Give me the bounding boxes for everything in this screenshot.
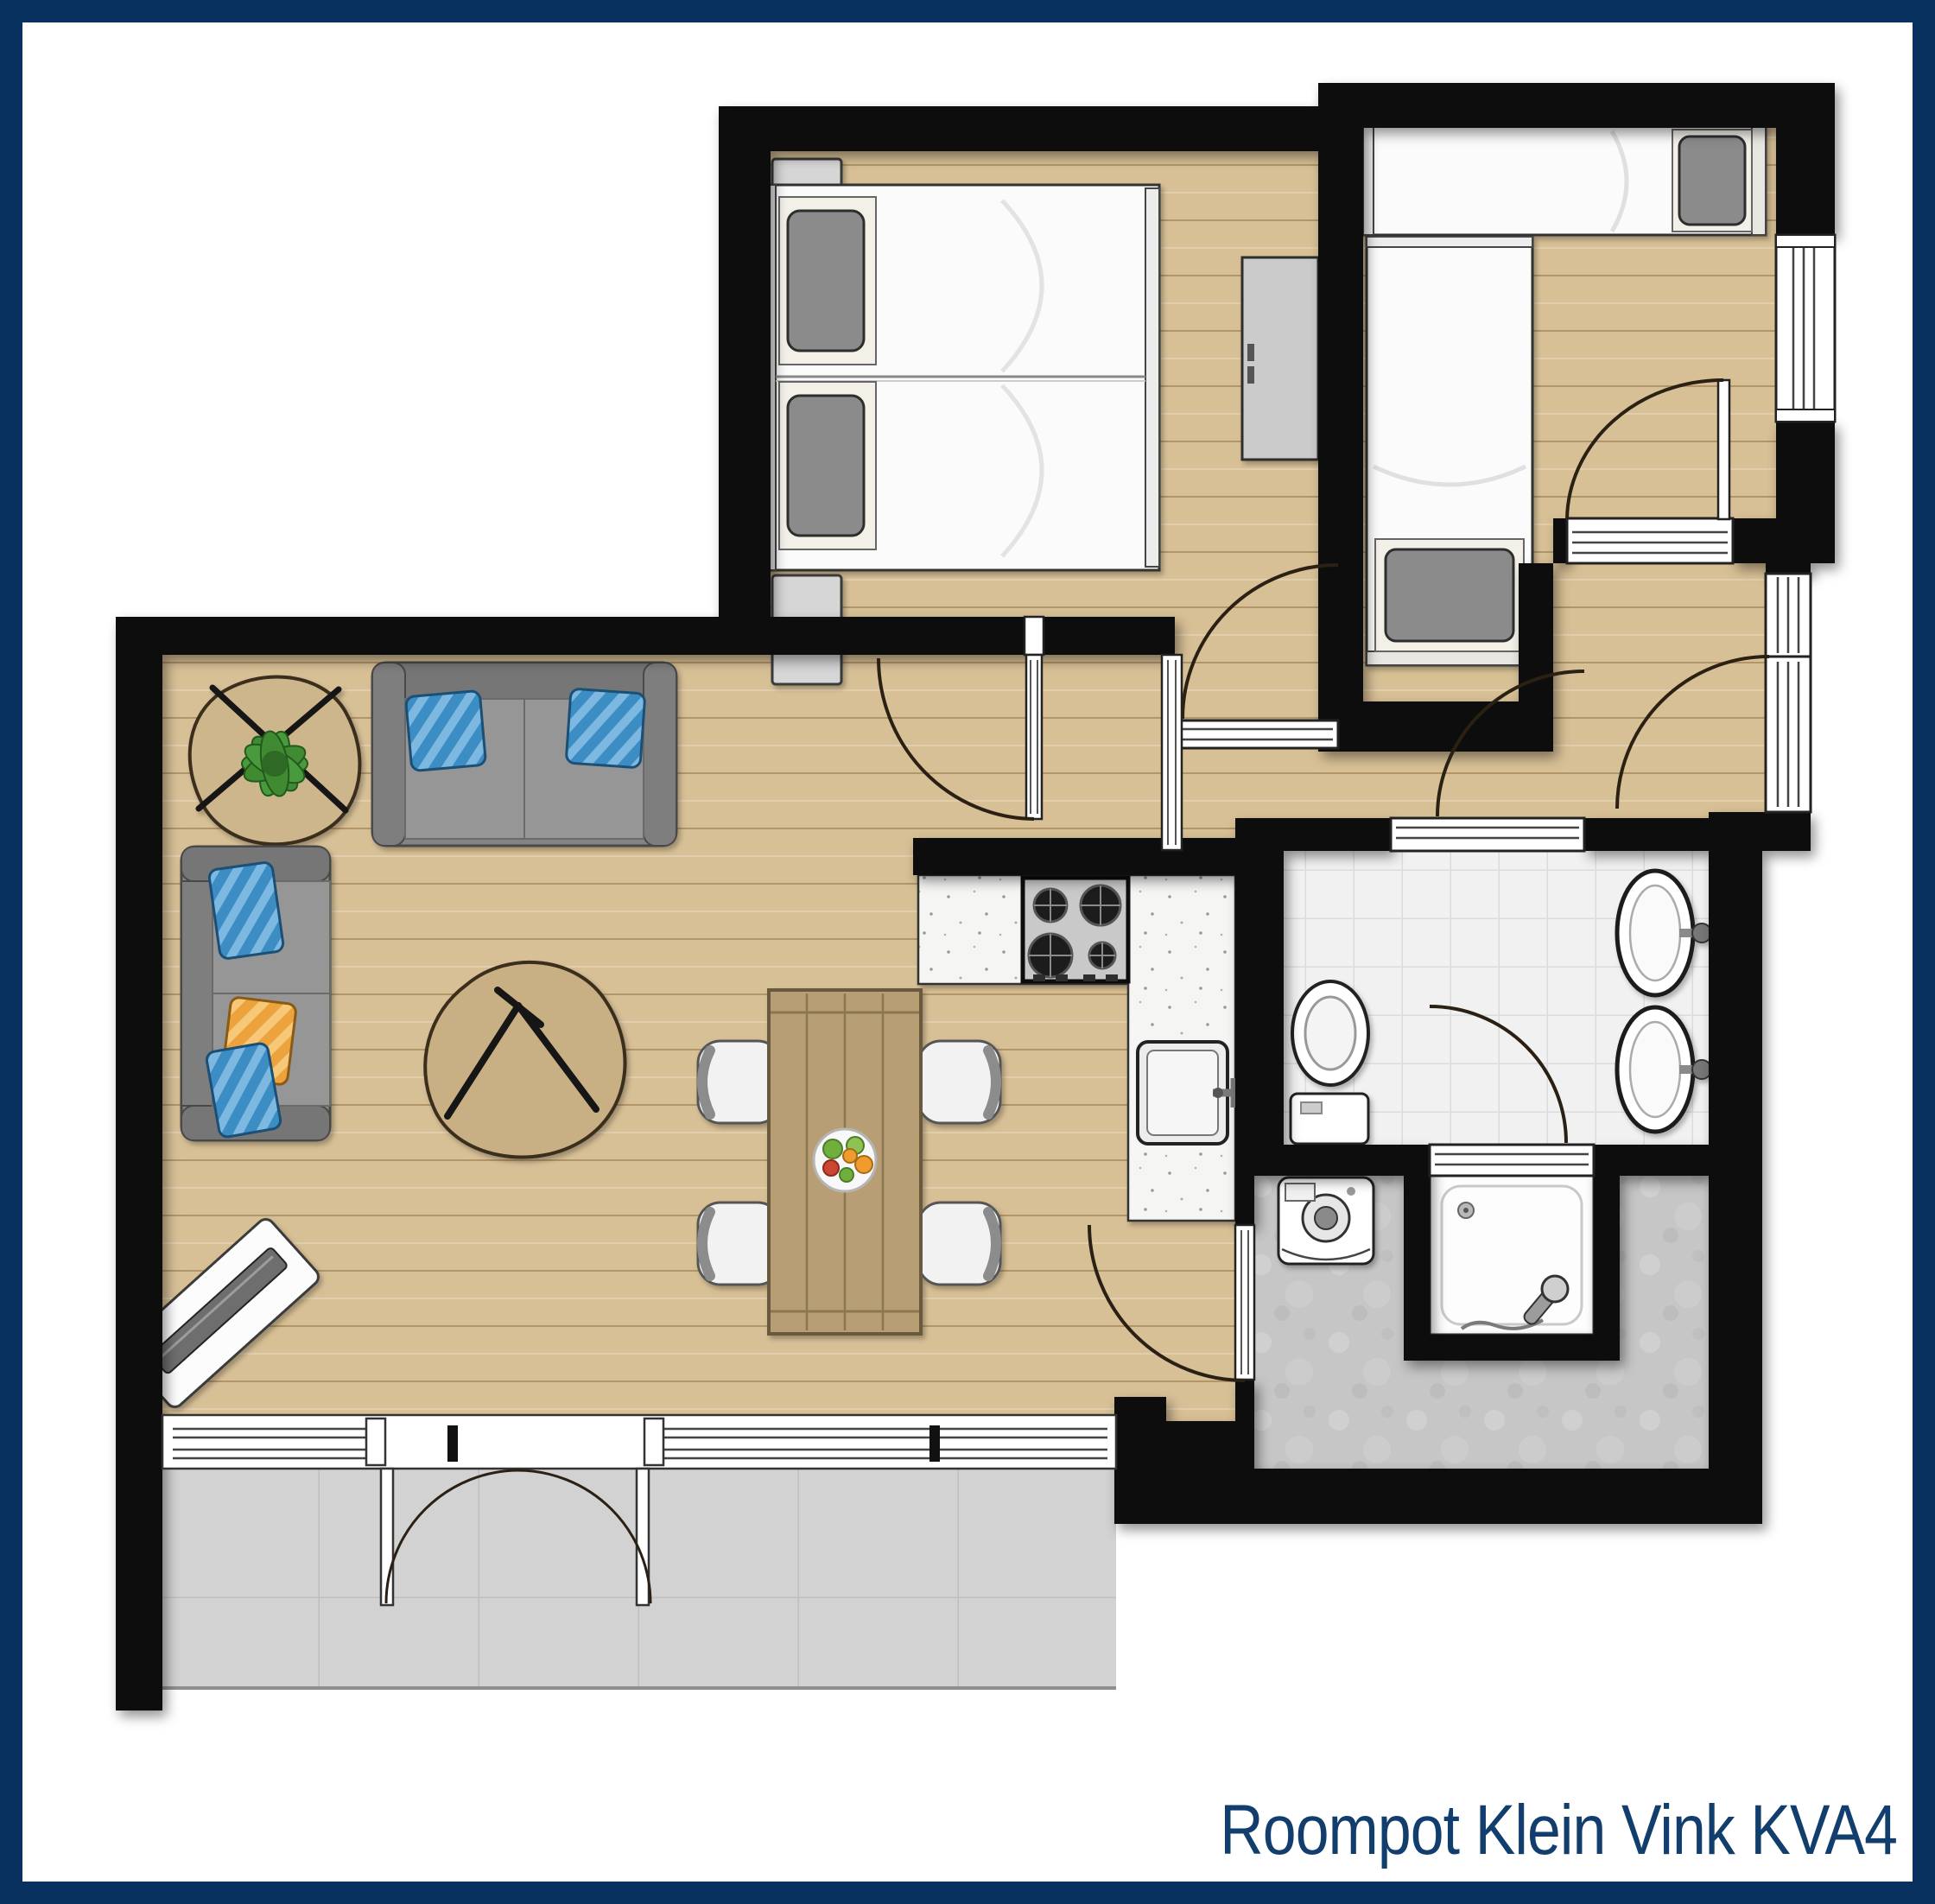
entrance-door: [1766, 657, 1811, 812]
door-jamb: [1235, 1225, 1254, 1380]
pillow: [1679, 136, 1745, 225]
kitchen-sink: [1138, 1042, 1242, 1144]
wall: [719, 106, 771, 655]
wall: [1235, 838, 1284, 1176]
washing-machine: [1278, 1177, 1374, 1264]
wall: [1709, 851, 1762, 1524]
bedroom1-wardrobe: [1242, 257, 1318, 460]
wall: [1235, 818, 1391, 851]
bedroom2-single-bed-vertical: [1367, 237, 1532, 665]
wall: [116, 617, 771, 655]
wall: [1553, 518, 1567, 563]
blue-pillow: [566, 689, 645, 768]
wall: [116, 617, 162, 1710]
three-seat-sofa: [372, 663, 676, 846]
pillow: [788, 211, 864, 351]
wall: [1766, 563, 1811, 574]
bedroom2-single-bed-horizontal: [1363, 126, 1766, 235]
toilet: [1291, 981, 1368, 1144]
dining-table: [769, 990, 921, 1334]
shower-cabin: [1430, 1176, 1594, 1335]
fruit-bowl-icon: [814, 1129, 876, 1191]
door-jamb: [1025, 617, 1044, 819]
shower-wall: [1594, 1145, 1620, 1361]
mullion: [929, 1425, 940, 1462]
wall: [1338, 720, 1364, 748]
plant-side-table: [190, 676, 360, 844]
door-threshold: [1172, 720, 1338, 748]
shower-wall: [1404, 1335, 1620, 1361]
window: [1776, 235, 1835, 422]
dining-chair: [918, 1203, 1000, 1285]
floorplan-svg: [0, 0, 1935, 1904]
wall: [1733, 518, 1776, 563]
mullion: [447, 1425, 458, 1462]
door-threshold: [1430, 1145, 1594, 1176]
blue-pillow: [206, 1043, 282, 1139]
shower-wall: [1404, 1145, 1430, 1361]
french-door-leaf: [637, 1469, 649, 1605]
pillow: [1386, 549, 1513, 641]
floor-plan-page: Roompot Klein Vink KVA4: [0, 0, 1935, 1904]
wall: [771, 617, 1175, 655]
wall: [1254, 1469, 1762, 1524]
door-leaf: [1026, 655, 1042, 819]
wall-jamb-strip: [1162, 655, 1182, 850]
wall: [1318, 83, 1835, 128]
wall: [719, 106, 1363, 151]
wall: [1114, 1397, 1166, 1524]
door-leaf: [1718, 380, 1729, 519]
dining-chair: [918, 1041, 1000, 1123]
wall: [1318, 128, 1363, 701]
wall: [913, 838, 1235, 875]
blue-pillow: [405, 690, 485, 771]
door-threshold: [1391, 818, 1584, 851]
two-seat-sofa: [181, 847, 330, 1140]
wall: [1166, 1421, 1254, 1524]
blue-pillow: [208, 861, 284, 959]
plan-title: Roompot Klein Vink KVA4: [1220, 1790, 1897, 1871]
pillow: [788, 396, 864, 536]
window: [1766, 574, 1811, 657]
wall: [1709, 812, 1811, 851]
wall: [1776, 83, 1835, 235]
wall: [1235, 1176, 1254, 1225]
door-threshold: [1567, 518, 1733, 563]
bedroom1-double-bed: [764, 185, 1159, 570]
wall: [1235, 1380, 1254, 1421]
gas-hob: [1023, 878, 1128, 981]
wall: [1584, 818, 1709, 851]
